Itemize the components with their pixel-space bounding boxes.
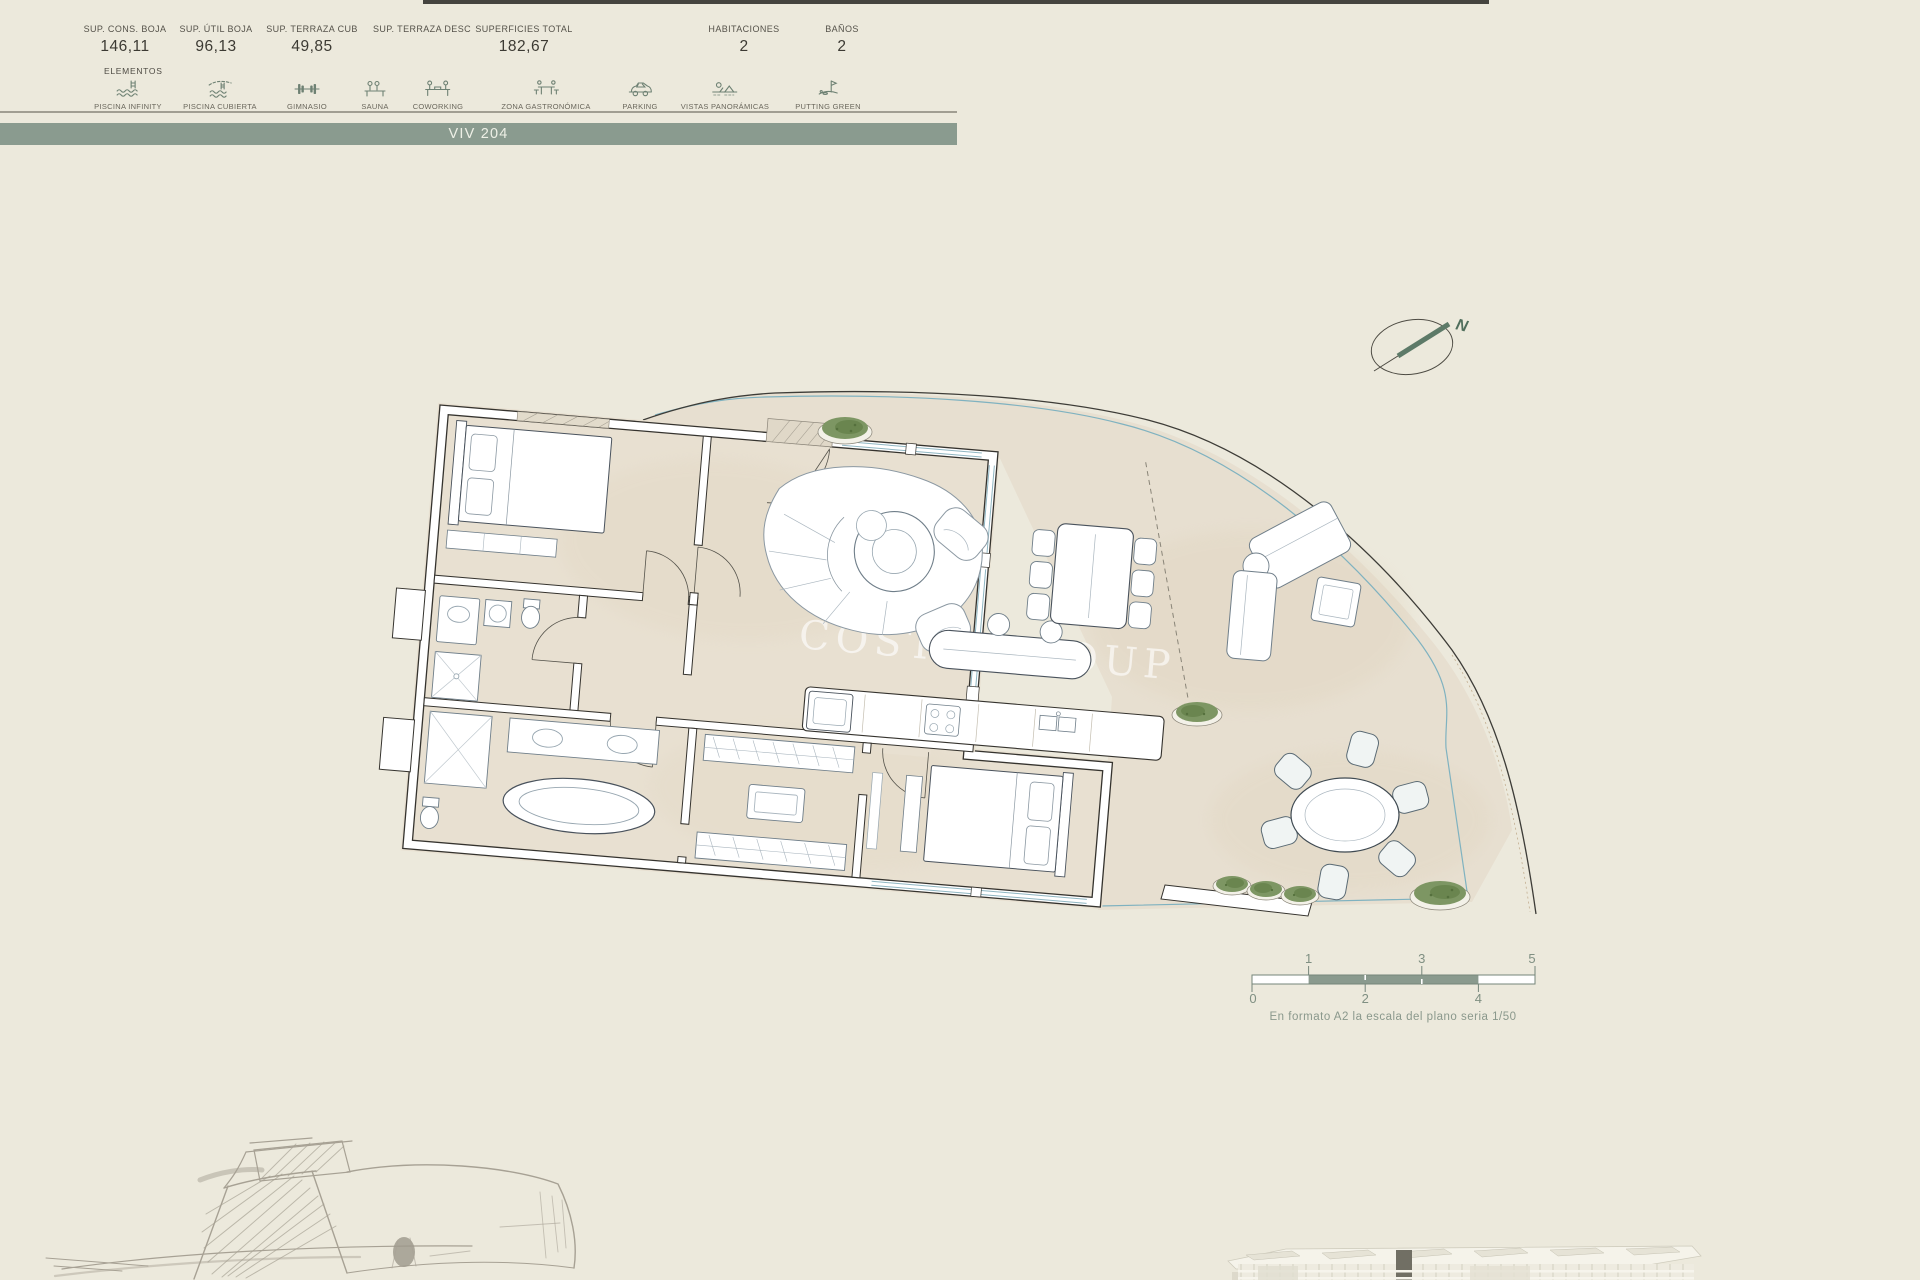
compass: N [1367,313,1470,380]
scale-tick-label: 4 [1475,991,1482,1006]
scale-tick-label: 3 [1418,951,1425,966]
floorplan-page: SUP. CONS. BOJA 146,11 SUP. ÚTIL BOJA 96… [0,0,1920,1280]
outdoor-sofa [1226,570,1278,662]
scale-tick-label: 5 [1528,951,1535,966]
scale-tick-label: 1 [1305,951,1312,966]
scale-bar: 1 3 5 0 2 4 En formato A2 la escala del … [1249,951,1535,1023]
scale-tick-label: 2 [1362,991,1369,1006]
tower-sketch [46,1138,575,1279]
building-render [1228,1246,1701,1280]
outdoor-table [1311,577,1362,628]
compass-north-label: N [1454,316,1470,335]
scale-tick-label: 0 [1249,991,1256,1006]
scale-caption: En formato A2 la escala del plano seria … [1269,1011,1516,1023]
floor-plan-drawing: COSTA GROUP [0,0,1920,1280]
